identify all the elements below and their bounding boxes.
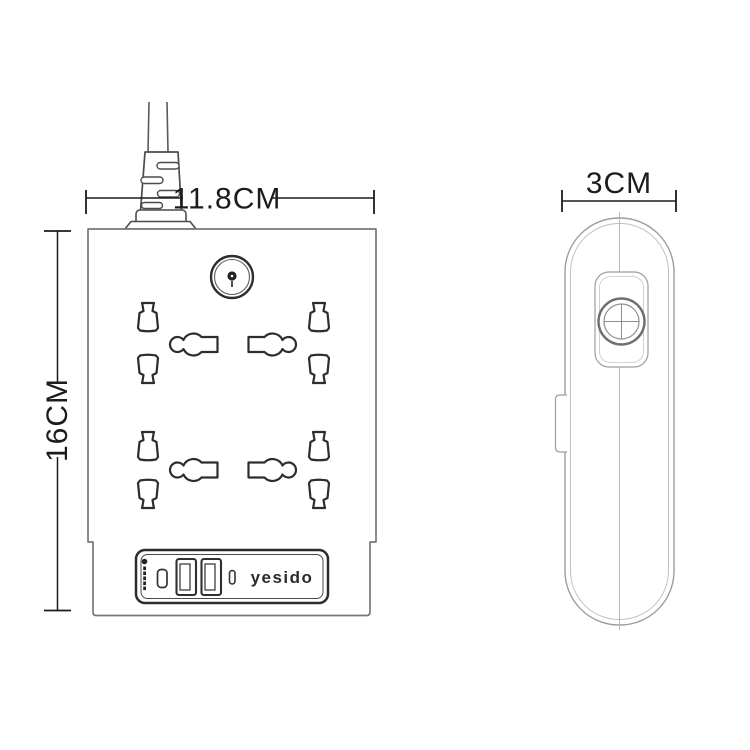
height-dimension-label: 16CM (41, 378, 74, 462)
combo-slot (170, 459, 218, 481)
brand-logo: yesido (251, 568, 314, 587)
usb-c-port (158, 570, 168, 588)
power-button (211, 256, 253, 298)
combo-slot (249, 459, 297, 481)
combo-slot (170, 334, 218, 356)
side-tab (556, 395, 568, 452)
usb-c-port (230, 571, 236, 585)
power-cable-icon (148, 102, 168, 152)
dimension-diagram: yesido 11.8CM 16CM (0, 0, 750, 750)
combo-slot (249, 334, 297, 356)
side-power-button (595, 272, 648, 367)
side-view (556, 212, 675, 630)
front-view: yesido (88, 102, 376, 616)
usb-a-port (177, 559, 197, 595)
width-dimension-label: 11.8CM (173, 183, 282, 216)
usb-a-port (202, 559, 222, 595)
usb-panel: yesido (136, 550, 328, 603)
diagram-canvas: yesido 11.8CM 16CM (0, 0, 750, 750)
depth-dimension-label: 3CM (586, 167, 652, 200)
